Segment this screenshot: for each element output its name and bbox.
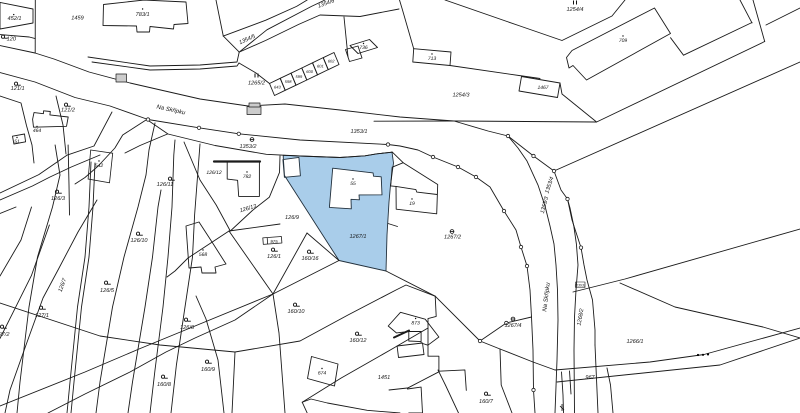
svg-text:121/2: 121/2 xyxy=(61,106,76,113)
svg-text:121/1: 121/1 xyxy=(11,85,25,92)
svg-text:126/12: 126/12 xyxy=(206,170,222,176)
svg-text:1451: 1451 xyxy=(378,375,390,381)
svg-text:464: 464 xyxy=(33,128,42,134)
svg-text:873: 873 xyxy=(411,321,420,327)
svg-text:568: 568 xyxy=(199,252,208,258)
svg-text:1254/3: 1254/3 xyxy=(452,92,470,99)
svg-text:1267/1: 1267/1 xyxy=(349,233,366,240)
svg-text:160/7: 160/7 xyxy=(479,398,494,405)
svg-text:126/5: 126/5 xyxy=(100,287,115,294)
svg-text:120: 120 xyxy=(7,37,17,43)
svg-text:1353/1: 1353/1 xyxy=(350,128,367,135)
svg-text:160/16: 160/16 xyxy=(301,255,319,262)
svg-text:783/1: 783/1 xyxy=(136,11,150,18)
svg-text:1265/2: 1265/2 xyxy=(248,80,266,87)
svg-text:598: 598 xyxy=(285,79,292,84)
svg-text:160/8: 160/8 xyxy=(157,381,172,388)
svg-text:55: 55 xyxy=(350,181,356,187)
svg-text:709: 709 xyxy=(619,38,628,44)
svg-text:782: 782 xyxy=(243,174,252,180)
svg-text:(1353): (1353) xyxy=(575,284,585,288)
svg-text:127/1: 127/1 xyxy=(35,312,49,319)
svg-text:1467: 1467 xyxy=(537,85,548,91)
svg-text:51: 51 xyxy=(14,139,20,145)
svg-text:602: 602 xyxy=(328,59,335,64)
svg-text:160/12: 160/12 xyxy=(349,337,367,344)
svg-text:599: 599 xyxy=(296,74,303,79)
svg-text:27/2: 27/2 xyxy=(0,331,10,338)
svg-text:160/10: 160/10 xyxy=(287,308,305,315)
svg-text:126/9: 126/9 xyxy=(285,214,299,221)
svg-text:542: 542 xyxy=(95,163,104,169)
svg-text:975: 975 xyxy=(270,239,278,244)
svg-text:600: 600 xyxy=(306,69,313,74)
svg-text:601: 601 xyxy=(317,64,324,69)
svg-text:160/9: 160/9 xyxy=(201,366,215,373)
svg-text:643: 643 xyxy=(274,84,281,89)
svg-text:736: 736 xyxy=(359,45,368,51)
svg-text:452/1: 452/1 xyxy=(8,15,22,22)
svg-text:674: 674 xyxy=(318,371,327,377)
svg-text:126/3: 126/3 xyxy=(51,195,66,202)
svg-text:1353/2: 1353/2 xyxy=(239,143,257,150)
svg-text:1267/4: 1267/4 xyxy=(504,322,521,329)
svg-text:713: 713 xyxy=(428,56,437,62)
svg-text:1254/4: 1254/4 xyxy=(566,6,583,13)
svg-text:126/11: 126/11 xyxy=(157,181,174,188)
svg-text:967: 967 xyxy=(585,375,595,381)
svg-text:1266/1: 1266/1 xyxy=(626,338,643,345)
svg-text:126/10: 126/10 xyxy=(130,237,148,244)
svg-text:1459: 1459 xyxy=(71,16,83,22)
svg-text:1267/2: 1267/2 xyxy=(444,234,462,241)
svg-text:19: 19 xyxy=(409,201,415,207)
svg-text:126/6: 126/6 xyxy=(180,324,195,331)
svg-text:126/1: 126/1 xyxy=(267,253,281,260)
